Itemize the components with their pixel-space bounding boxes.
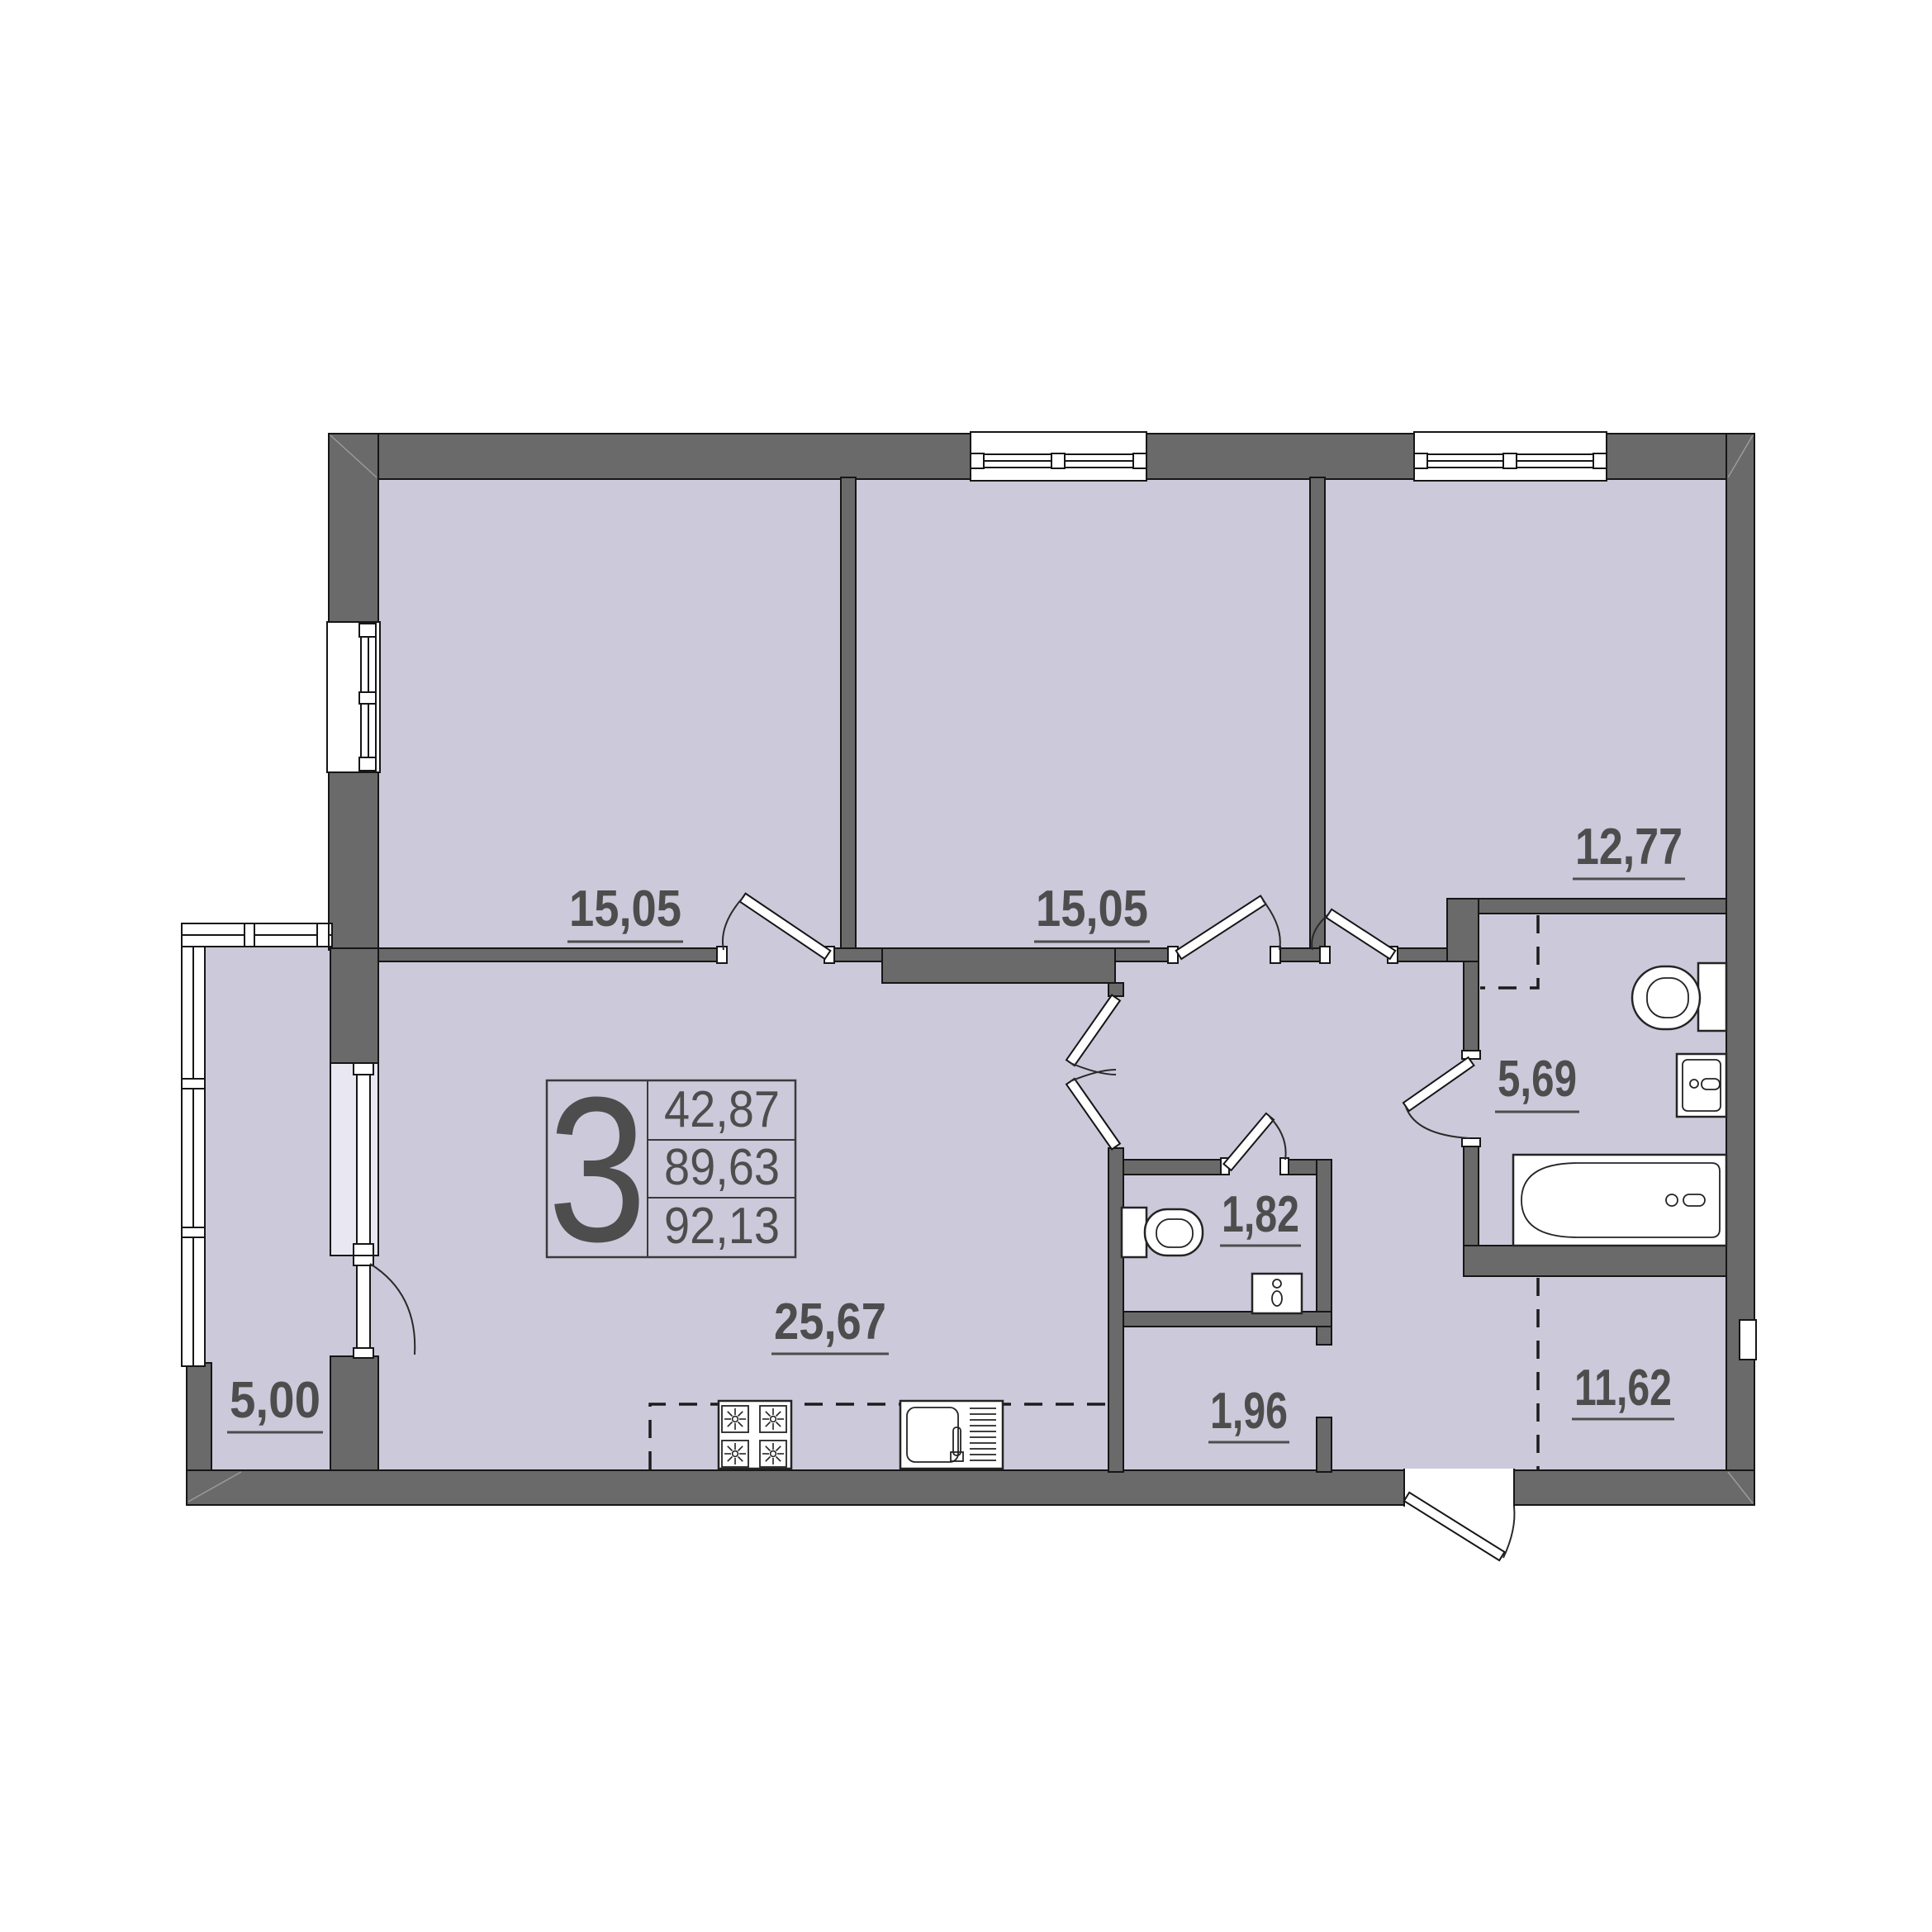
entrance-door-swing-arc bbox=[1503, 1507, 1514, 1558]
wall-double-door-stub bbox=[1108, 983, 1123, 996]
wall-bathroom-top bbox=[1479, 899, 1726, 914]
wall-bedroom1-living-b bbox=[828, 948, 882, 961]
floor-plan-page: 3 42,87 89,63 92,13 15,05 15,05 12,77 25… bbox=[0, 0, 1932, 1932]
window-left bbox=[327, 622, 380, 772]
room-corridor bbox=[1123, 1327, 1317, 1470]
balcony-door-leaf bbox=[357, 1256, 370, 1356]
wall-wc-left bbox=[1108, 1148, 1123, 1472]
wall-wc-top-left bbox=[1123, 1160, 1224, 1175]
room-hallway bbox=[1338, 1276, 1726, 1470]
wall-bathroom-bottom bbox=[1464, 1246, 1726, 1276]
wall-corridor-right-stub bbox=[1317, 1417, 1332, 1472]
room-balcony bbox=[205, 947, 330, 1470]
wall-hall-bedroom2-a bbox=[1115, 948, 1176, 961]
wall-hall-bedroom3 bbox=[1394, 948, 1447, 961]
right-wall-notch bbox=[1740, 1320, 1756, 1360]
wall-bedroom2-bedroom3 bbox=[1310, 477, 1325, 961]
balcony-window bbox=[330, 1063, 378, 1256]
window-top-2 bbox=[1414, 432, 1607, 481]
room-wc bbox=[1123, 1175, 1317, 1312]
window-frame bbox=[357, 1063, 370, 1256]
entrance-door bbox=[1404, 1469, 1515, 1560]
window-top-1 bbox=[971, 432, 1146, 481]
floor-plan-drawing: 3 42,87 89,63 92,13 15,05 15,05 12,77 25… bbox=[0, 0, 1932, 1932]
wall-bedroom1-bedroom2 bbox=[841, 477, 856, 961]
room-bedroom-1 bbox=[378, 479, 841, 948]
wall-exterior-bottom bbox=[187, 1470, 1754, 1505]
room-bedroom-2 bbox=[856, 479, 1310, 948]
room-bedroom-3 bbox=[1325, 479, 1726, 899]
wall-bedroom3-bath-corner bbox=[1447, 899, 1479, 961]
wall-bathroom-left-upper bbox=[1464, 961, 1479, 1059]
wall-balcony-pier-lower bbox=[330, 1356, 378, 1480]
room-bathroom bbox=[1479, 914, 1726, 1246]
room-kitchen-living bbox=[378, 961, 1108, 1470]
room-regions bbox=[205, 479, 1726, 1470]
wall-balcony-pier-upper bbox=[330, 948, 378, 1063]
wall-bedroom1-living-a bbox=[378, 948, 725, 961]
